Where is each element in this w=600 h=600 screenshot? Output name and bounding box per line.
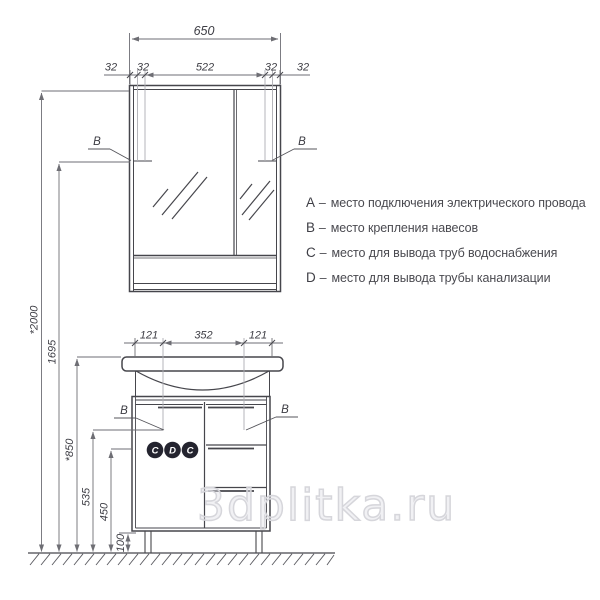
pipe-marker-c1: C — [152, 446, 159, 457]
dim-label-32-1: 32 — [105, 62, 117, 74]
legend-text-b: место крепления навесов — [331, 221, 478, 235]
legend-item-b: B – место крепления навесов — [306, 220, 596, 245]
legend-dash: – — [320, 246, 327, 260]
vanity-cabinet — [132, 397, 270, 554]
dim-label-32-3: 32 — [265, 62, 277, 74]
dim-label-32-2: 32 — [137, 62, 149, 74]
legend-text-d: место для вывода трубы канализации — [332, 271, 551, 285]
pipe-marker-c2: C — [187, 446, 194, 457]
legs — [145, 531, 262, 553]
dim-label-850: *850 — [64, 438, 76, 462]
mirror-cabinet — [130, 86, 281, 292]
legend-key-b: B — [306, 220, 315, 235]
legend-text-a: место подключения электрического провода — [331, 196, 586, 210]
mirror-glass-hatch-right — [240, 181, 274, 220]
vanity-mount-guides — [163, 338, 244, 430]
dim-label-121-left: 121 — [140, 330, 158, 342]
dim-mirror-width — [130, 33, 281, 84]
dim-label-450: 450 — [99, 502, 111, 521]
sink — [122, 357, 283, 396]
legend-text-c: место для вывода труб водоснабжения — [332, 246, 558, 260]
legend-dash: – — [320, 271, 327, 285]
legend-key-d: D — [306, 270, 316, 285]
legend: A – место подключения электрического про… — [306, 195, 596, 295]
mirror-mount-guides — [138, 70, 273, 161]
drawing-canvas: 650 32 32 522 32 32 121 352 121 — [0, 0, 600, 600]
legend-item-d: D – место для вывода трубы канализации — [306, 270, 596, 295]
pipe-marker-d: D — [169, 446, 176, 457]
dim-label-32-4: 32 — [297, 62, 309, 74]
legend-item-a: A – место подключения электрического про… — [306, 195, 596, 220]
legend-item-c: C – место для вывода труб водоснабжения — [306, 245, 596, 270]
legend-key-c: C — [306, 245, 316, 260]
legend-dash: – — [319, 221, 326, 235]
b-label-vanity-left: B — [120, 405, 128, 417]
dim-label-650: 650 — [194, 24, 215, 38]
legend-dash: – — [319, 196, 326, 210]
dim-label-522: 522 — [196, 62, 214, 74]
pipe-markers: C D C — [147, 442, 199, 459]
b-label-mirror-right: B — [298, 136, 306, 148]
dim-label-2000: *2000 — [29, 305, 41, 335]
dim-label-1695: 1695 — [47, 339, 59, 364]
dim-label-100: 100 — [115, 533, 127, 552]
dim-label-352: 352 — [194, 330, 212, 342]
dim-label-121-right: 121 — [249, 330, 267, 342]
ground-line — [28, 553, 335, 565]
b-label-mirror-left: B — [93, 136, 101, 148]
mirror-glass-hatch-left — [153, 172, 207, 219]
technical-drawing-page: 650 32 32 522 32 32 121 352 121 — [0, 0, 600, 600]
dim-label-535: 535 — [81, 487, 93, 506]
legend-key-a: A — [306, 195, 315, 210]
b-label-vanity-right: B — [281, 404, 289, 416]
